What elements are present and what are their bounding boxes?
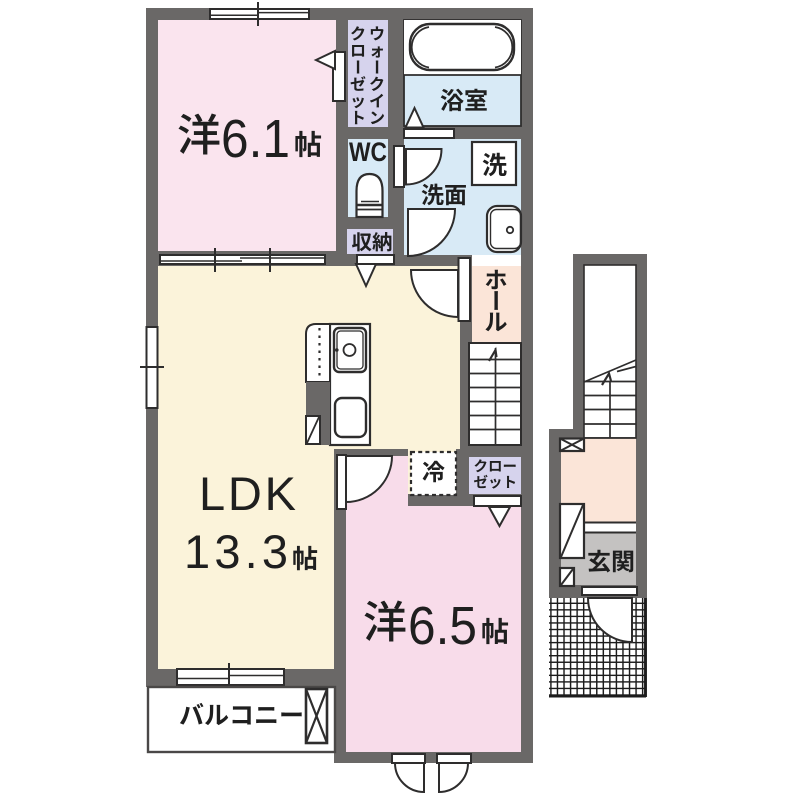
svg-text:WC: WC [349, 137, 387, 167]
svg-text:LDK: LDK [199, 467, 296, 520]
svg-text:13.3: 13.3 [184, 525, 288, 578]
svg-text:6.5: 6.5 [408, 596, 477, 656]
svg-text:6.1: 6.1 [221, 109, 290, 169]
